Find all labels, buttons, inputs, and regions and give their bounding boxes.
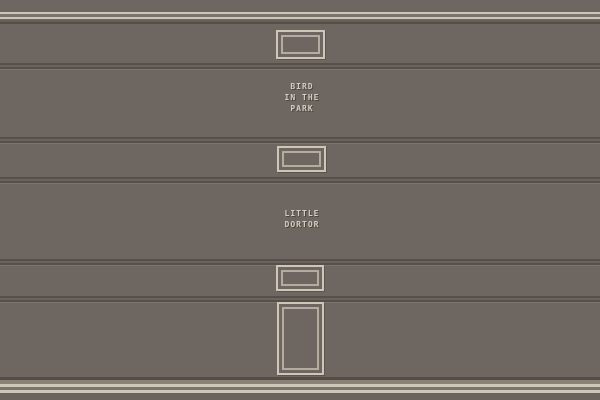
panel-groove-2 bbox=[0, 137, 600, 144]
nameplate-line: PARK bbox=[247, 103, 357, 114]
portrait-door-frame[interactable] bbox=[277, 302, 324, 375]
nameplate-line: BIRD bbox=[247, 81, 357, 92]
picture-frame-middle[interactable] bbox=[277, 146, 326, 172]
panel-groove-3 bbox=[0, 177, 600, 184]
nameplate-line: IN THE bbox=[247, 92, 357, 103]
nameplate-line: DORTOR bbox=[247, 219, 357, 230]
nameplate-little-dortor: LITTLE DORTOR bbox=[247, 208, 357, 230]
cornice-dark-line bbox=[0, 22, 600, 24]
panel-groove-1 bbox=[0, 63, 600, 70]
picture-frame-lower[interactable] bbox=[276, 265, 324, 291]
nameplate-bird-in-the-park: BIRD IN THE PARK bbox=[247, 81, 357, 114]
cornice-light-line-2 bbox=[0, 17, 600, 19]
nameplate-line: LITTLE bbox=[247, 208, 357, 219]
game-scene-wall: BIRD IN THE PARK LITTLE DORTOR bbox=[0, 0, 600, 400]
picture-frame-top[interactable] bbox=[276, 30, 325, 59]
skirting-base bbox=[0, 393, 600, 400]
